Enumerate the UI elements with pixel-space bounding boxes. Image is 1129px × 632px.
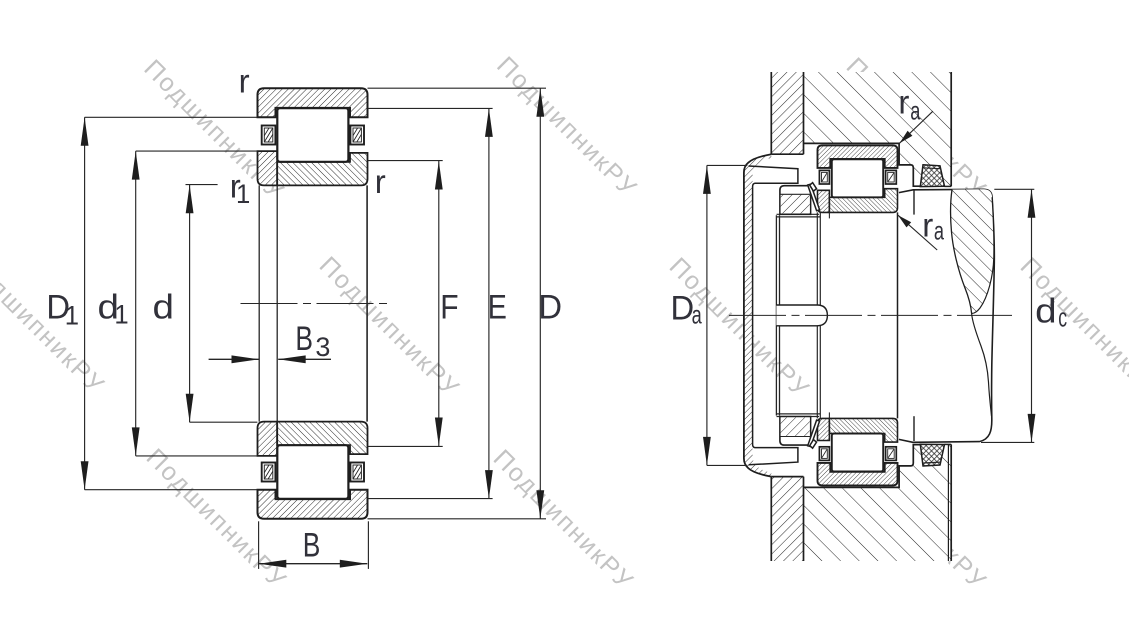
svg-text:B: B	[295, 319, 313, 358]
svg-text:a: a	[934, 216, 945, 245]
svg-text:d: d	[1035, 291, 1056, 330]
svg-text:r: r	[922, 207, 933, 244]
svg-text:1: 1	[236, 178, 250, 209]
svg-text:F: F	[440, 287, 458, 325]
svg-text:B: B	[303, 525, 321, 564]
svg-text:1: 1	[65, 300, 79, 331]
svg-text:3: 3	[315, 332, 330, 362]
svg-text:D: D	[671, 290, 695, 328]
svg-text:E: E	[488, 287, 507, 326]
svg-text:1: 1	[114, 299, 128, 330]
svg-text:r: r	[898, 84, 909, 121]
svg-text:r: r	[375, 163, 386, 200]
svg-text:d: d	[153, 287, 174, 326]
svg-text:D: D	[538, 289, 562, 327]
svg-text:c: c	[1058, 303, 1067, 332]
svg-text:r: r	[239, 62, 250, 99]
svg-text:a: a	[910, 96, 921, 125]
svg-text:a: a	[692, 300, 703, 329]
